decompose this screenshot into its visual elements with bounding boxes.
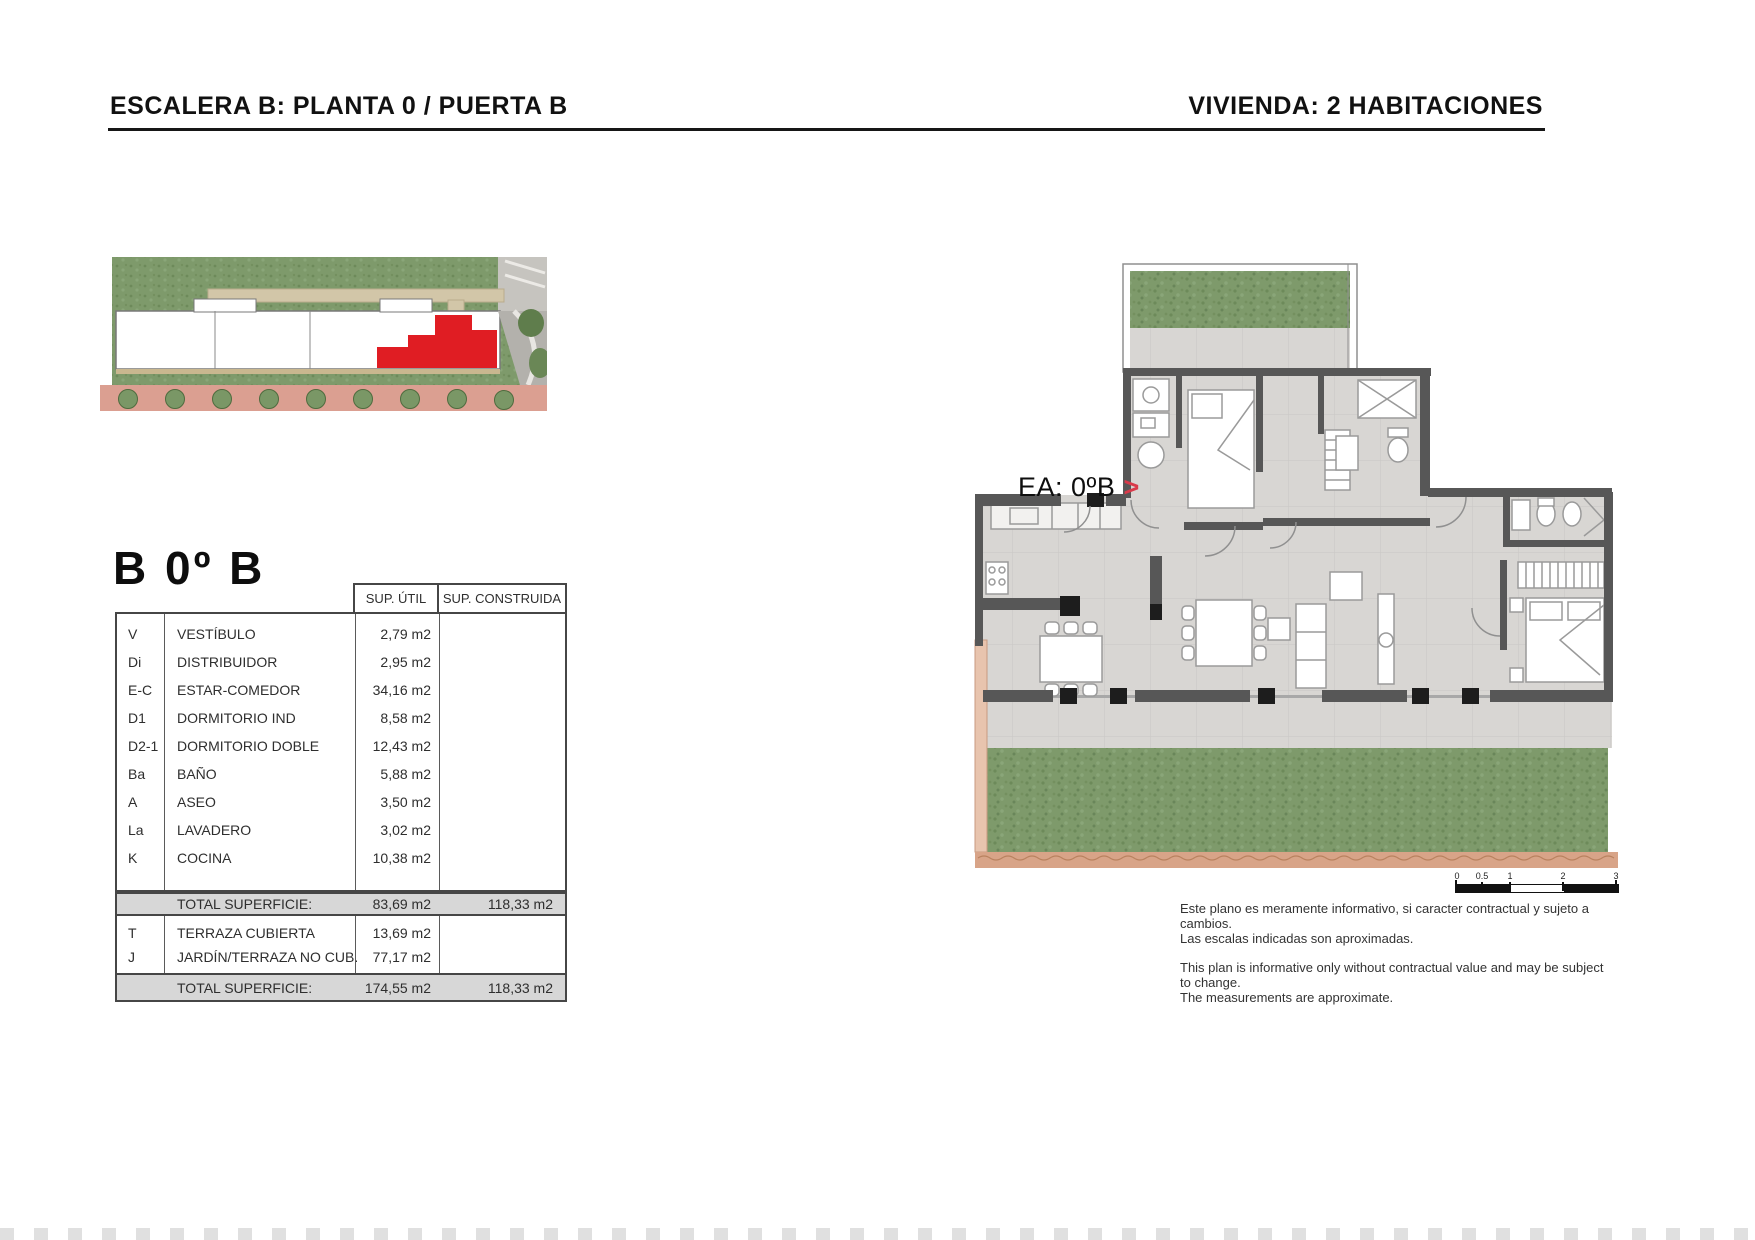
col-header-sup-util: SUP. ÚTIL: [353, 583, 437, 612]
table-row: J JARDÍN/TERRAZA NO CUB. 77,17 m2: [117, 945, 565, 969]
total-superficie-row-2: TOTAL SUPERFICIE: 174,55 m2 118,33 m2: [115, 975, 567, 1002]
table-row: Ba BAÑO 5,88 m2: [117, 760, 565, 788]
top-terrace: [1123, 264, 1357, 372]
room-rows: V VESTÍBULO 2,79 m2 Di DISTRIBUIDOR 2,95…: [115, 612, 567, 892]
plan-entry-label: EA: 0ºB >: [1018, 472, 1140, 503]
plan-entry-label-text: EA: 0ºB: [1018, 472, 1115, 502]
disclaimer: Este plano es meramente informativo, si …: [1180, 901, 1610, 1005]
table-row: D2-1 DORMITORIO DOBLE 12,43 m2: [117, 732, 565, 760]
table-row: T TERRAZA CUBIERTA 13,69 m2: [117, 921, 565, 945]
plan-sheet: ESCALERA B: PLANTA 0 / PUERTA B VIVIENDA…: [0, 0, 1755, 1240]
disclaimer-es-line1: Este plano es meramente informativo, si …: [1180, 901, 1610, 931]
floor-plan: [970, 258, 1625, 873]
total-superficie-row: TOTAL SUPERFICIE: 83,69 m2 118,33 m2: [115, 892, 567, 916]
garden: [987, 748, 1608, 852]
site-plan-thumbnail: [100, 253, 547, 415]
disclaimer-en-line2: The measurements are approximate.: [1180, 990, 1610, 1005]
table-row: Di DISTRIBUIDOR 2,95 m2: [117, 648, 565, 676]
unit-title: B 0º B: [113, 541, 265, 595]
disclaimer-en-line1: This plan is informative only without co…: [1180, 960, 1610, 990]
chevron-right-icon: >: [1123, 472, 1139, 502]
page-title-left: ESCALERA B: PLANTA 0 / PUERTA B: [110, 92, 568, 121]
col-header-sup-construida: SUP. CONSTRUIDA: [437, 583, 567, 612]
page-title-right: VIVIENDA: 2 HABITACIONES: [1188, 92, 1543, 121]
terrace-rows: T TERRAZA CUBIERTA 13,69 m2 J JARDÍN/TER…: [115, 916, 567, 975]
table-row: A ASEO 3,50 m2: [117, 788, 565, 816]
table-row: D1 DORMITORIO IND 8,58 m2: [117, 704, 565, 732]
header-rule: [108, 128, 1545, 131]
site-trees: [119, 390, 514, 410]
bottom-artifact: [0, 1228, 1755, 1240]
disclaimer-es-line2: Las escalas indicadas son aproximadas.: [1180, 931, 1610, 946]
table-row: V VESTÍBULO 2,79 m2: [117, 620, 565, 648]
table-row: K COCINA 10,38 m2: [117, 844, 565, 872]
scale-bar: 0 0.5 1 2 3: [1455, 871, 1621, 897]
table-row: E-C ESTAR-COMEDOR 34,16 m2: [117, 676, 565, 704]
table-row: La LAVADERO 3,02 m2: [117, 816, 565, 844]
